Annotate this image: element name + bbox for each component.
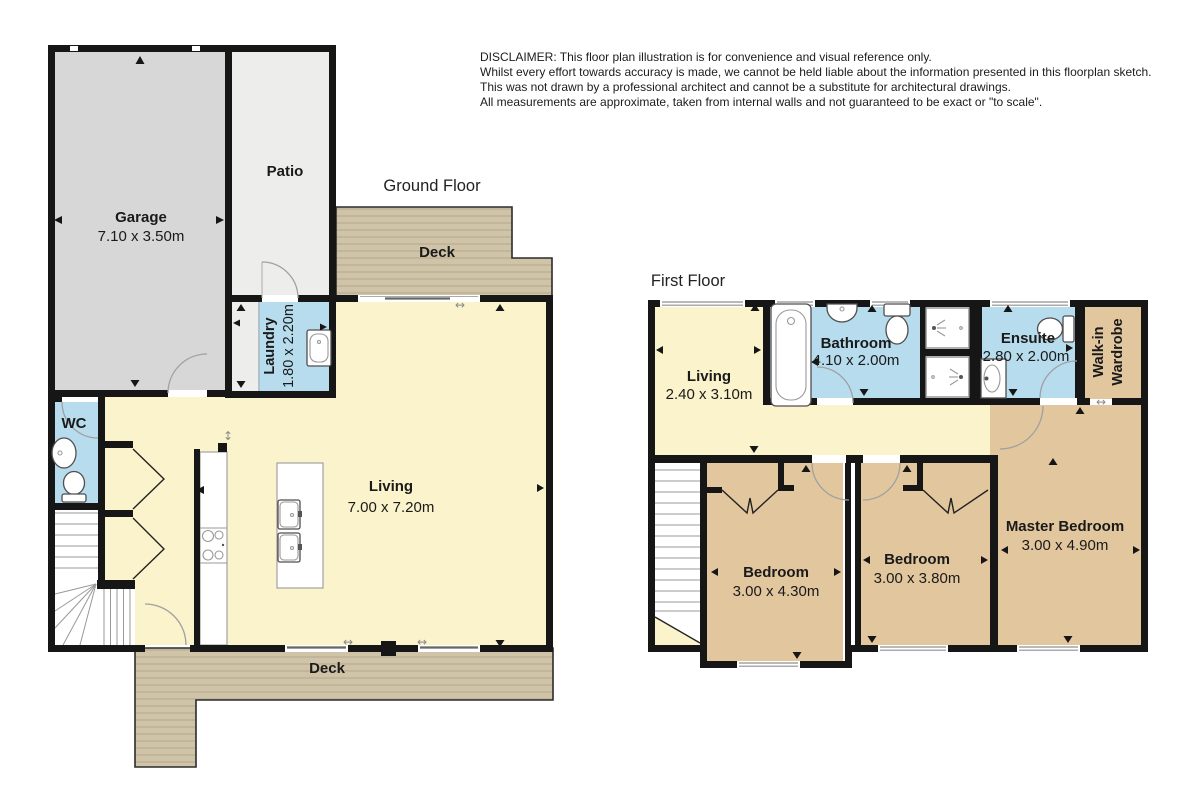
- room-label-laundry: Laundry: [262, 317, 278, 374]
- shower-icon: [926, 308, 969, 348]
- swing-door-icon: ↕: [223, 429, 233, 443]
- sliding-door-icon: ↔: [1096, 395, 1106, 409]
- sliding-door-icon: ↔: [455, 298, 465, 312]
- room-dims-laundry: 1.80 x 2.20m: [281, 304, 297, 388]
- first-floor-title: First Floor: [651, 272, 726, 290]
- hallway-area: [763, 405, 990, 455]
- floorplan-drawing: ↔ ↔ ↔ ↕ Ground Floor Garage 7.10 x 3.50m…: [0, 0, 1200, 800]
- room-label-wc: WC: [62, 415, 87, 432]
- island-sink-icon: [278, 500, 302, 529]
- room-dims-ensuite: 2.80 x 2.00m: [983, 348, 1070, 365]
- kitchen-counter-icon: [200, 452, 227, 645]
- wc-toilet-icon: [62, 472, 86, 503]
- sliding-door-icon: ↔: [417, 635, 427, 649]
- room-label-living-ground: Living: [369, 478, 413, 495]
- staircase-first-icon: [655, 463, 700, 645]
- kitchen-island-icon: [277, 463, 323, 588]
- room-label-master-bedroom: Master Bedroom: [1006, 518, 1124, 535]
- room-label-ensuite: Ensuite: [1001, 330, 1055, 347]
- room-label-wardrobe-line1: Walk-in: [1091, 326, 1107, 377]
- laundry-sink-icon: [307, 330, 331, 366]
- room-dims-garage: 7.10 x 3.50m: [98, 228, 185, 245]
- room-label-deck-upper: Deck: [419, 244, 456, 261]
- room-label-patio: Patio: [267, 163, 304, 180]
- sliding-door-icon: ↔: [343, 635, 353, 649]
- room-dims-bedroom-left: 3.00 x 4.30m: [733, 583, 820, 600]
- room-label-bedroom-middle: Bedroom: [884, 551, 950, 568]
- room-dims-living-first: 2.40 x 3.10m: [666, 386, 753, 403]
- wc-basin-icon: [52, 438, 76, 468]
- room-label-deck-lower: Deck: [309, 660, 346, 677]
- room-dims-bathroom: 4.10 x 2.00m: [813, 352, 900, 369]
- room-dims-living-ground: 7.00 x 7.20m: [348, 499, 435, 516]
- ground-floor-title: Ground Floor: [383, 177, 481, 195]
- room-label-living-first: Living: [687, 368, 731, 385]
- entry-corridor-area: [232, 302, 258, 391]
- room-dims-bedroom-middle: 3.00 x 3.80m: [874, 570, 961, 587]
- room-label-wardrobe-line2: Wardrobe: [1110, 318, 1126, 385]
- bathtub-icon: [771, 304, 811, 406]
- room-dims-master-bedroom: 3.00 x 4.90m: [1022, 537, 1109, 554]
- room-label-bedroom-left: Bedroom: [743, 564, 809, 581]
- shower-icon: [926, 357, 969, 397]
- ground-floor-plan: ↔ ↔ ↔ ↕ Ground Floor Garage 7.10 x 3.50m…: [48, 45, 553, 767]
- living-area: [336, 302, 546, 645]
- island-sink-icon: [278, 533, 302, 562]
- room-label-garage: Garage: [115, 209, 167, 226]
- floorplan-canvas: DISCLAIMER: This floor plan illustration…: [0, 0, 1200, 800]
- room-label-bathroom: Bathroom: [821, 335, 892, 352]
- first-floor-plan: ↔ First Floor Living 2.40 x 3.10m Bathro…: [648, 272, 1148, 668]
